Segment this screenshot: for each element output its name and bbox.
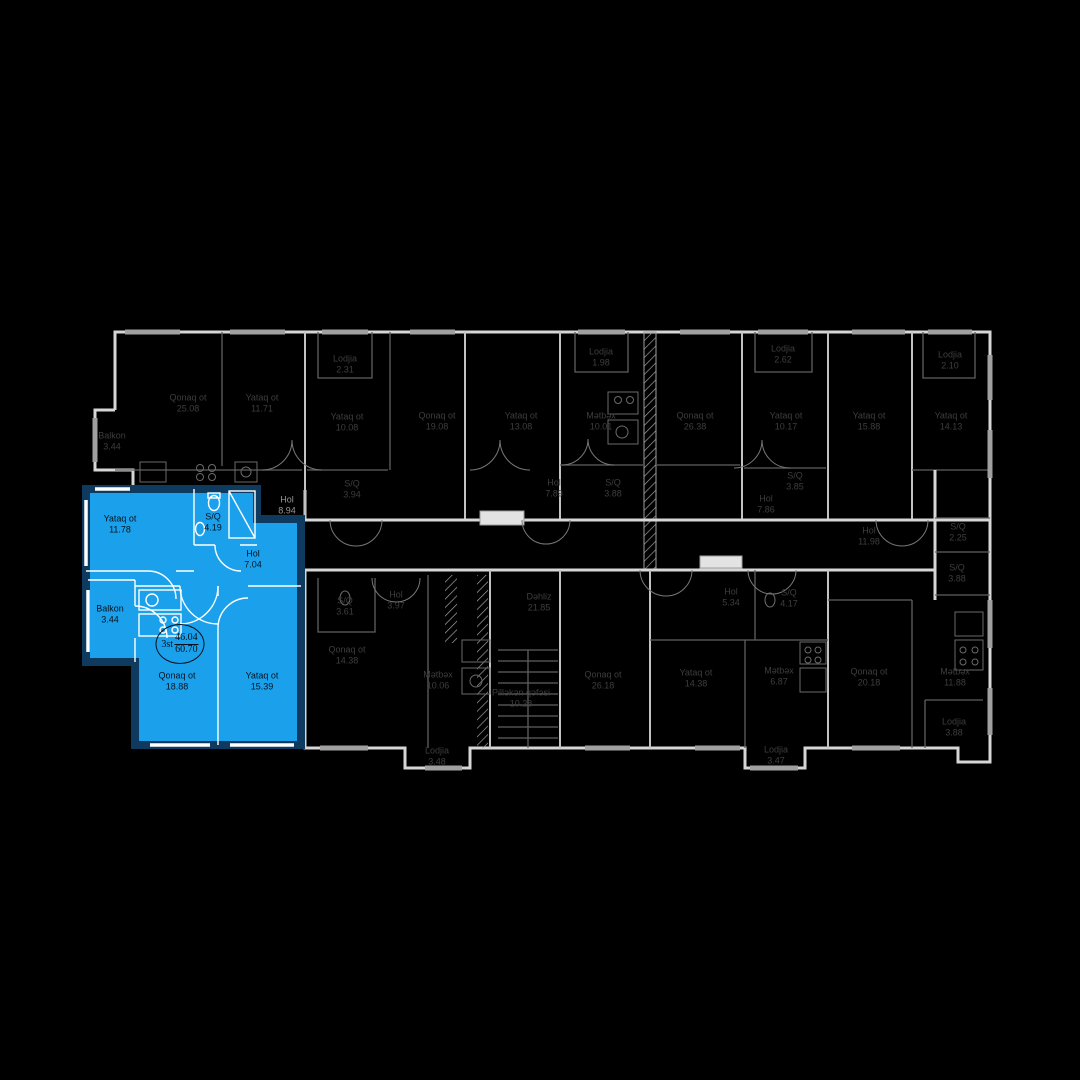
kitchen-wall-hatch [445, 575, 457, 643]
corridor-walls [305, 470, 935, 600]
bottom-slab-partitions [490, 570, 828, 748]
unit-total-area: 60.70 [174, 645, 199, 655]
top-left-balcony-outline [95, 410, 133, 489]
stair-treads [498, 650, 558, 748]
unit-area-badge: 3st 46.04 60.70 [156, 624, 205, 664]
corridor-threshold [480, 511, 524, 525]
floorplan-canvas: Qonaq ot25.08Yataq ot11.71Balkon3.44Hol8… [0, 0, 1080, 1080]
shaft-hatch [644, 332, 656, 570]
floorplan-drawing [0, 0, 1080, 1080]
corridor-threshold-2 [700, 556, 742, 568]
unit-floor-label: 3st [161, 639, 173, 650]
unit-area-fraction: 46.04 60.70 [174, 633, 199, 654]
unit-living-area: 46.04 [174, 633, 199, 644]
